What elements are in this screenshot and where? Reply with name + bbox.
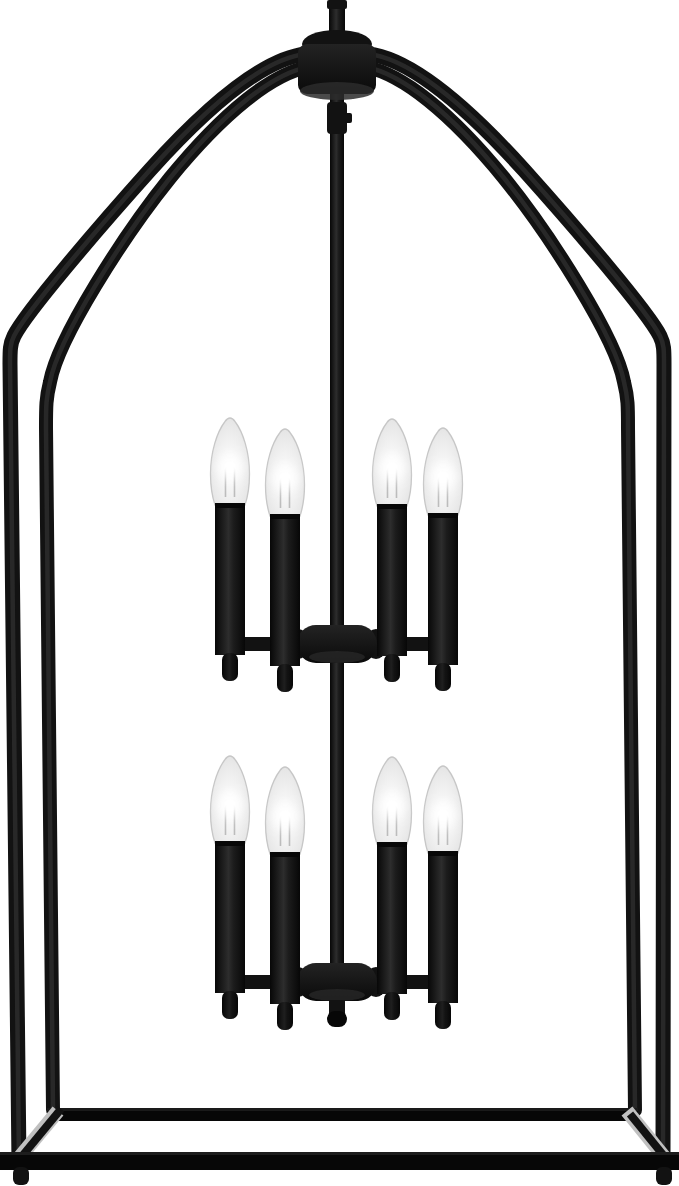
finial (327, 1000, 347, 1027)
candle-8 (424, 766, 463, 1029)
chandelier-illustration (0, 0, 679, 1186)
candle-1 (211, 418, 250, 681)
candle-2 (266, 429, 305, 692)
candle-7 (373, 757, 412, 1020)
finial-cap (327, 1011, 347, 1027)
cage-tube-front-right (368, 54, 664, 1162)
rod-collar (327, 0, 347, 9)
left-foot-cap (13, 1167, 29, 1185)
base-frame (0, 1108, 679, 1185)
ceiling-hub (298, 30, 376, 134)
base-side-bar-left (23, 1109, 61, 1155)
cage-sheen-back-left (46, 67, 308, 1110)
right-foot-cap (656, 1167, 672, 1185)
set-screw (345, 113, 352, 123)
candle-6 (266, 767, 305, 1030)
candle-5 (211, 756, 250, 1019)
tier-hub-underside (309, 989, 365, 1001)
base-front-bar-sheen (0, 1152, 679, 1155)
hanging-rod (327, 0, 347, 1004)
candle-3 (373, 419, 412, 682)
candle-4 (424, 428, 463, 691)
cage-tube-back-left (46, 67, 308, 1110)
tier-hub-underside (309, 651, 365, 663)
product-photo (0, 0, 679, 1186)
hub-underside (300, 82, 374, 100)
base-back-bar-sheen (47, 1108, 638, 1111)
cage-sheen-front-right (368, 54, 664, 1162)
rod-coupling (327, 102, 347, 134)
center-stem (330, 46, 344, 1004)
